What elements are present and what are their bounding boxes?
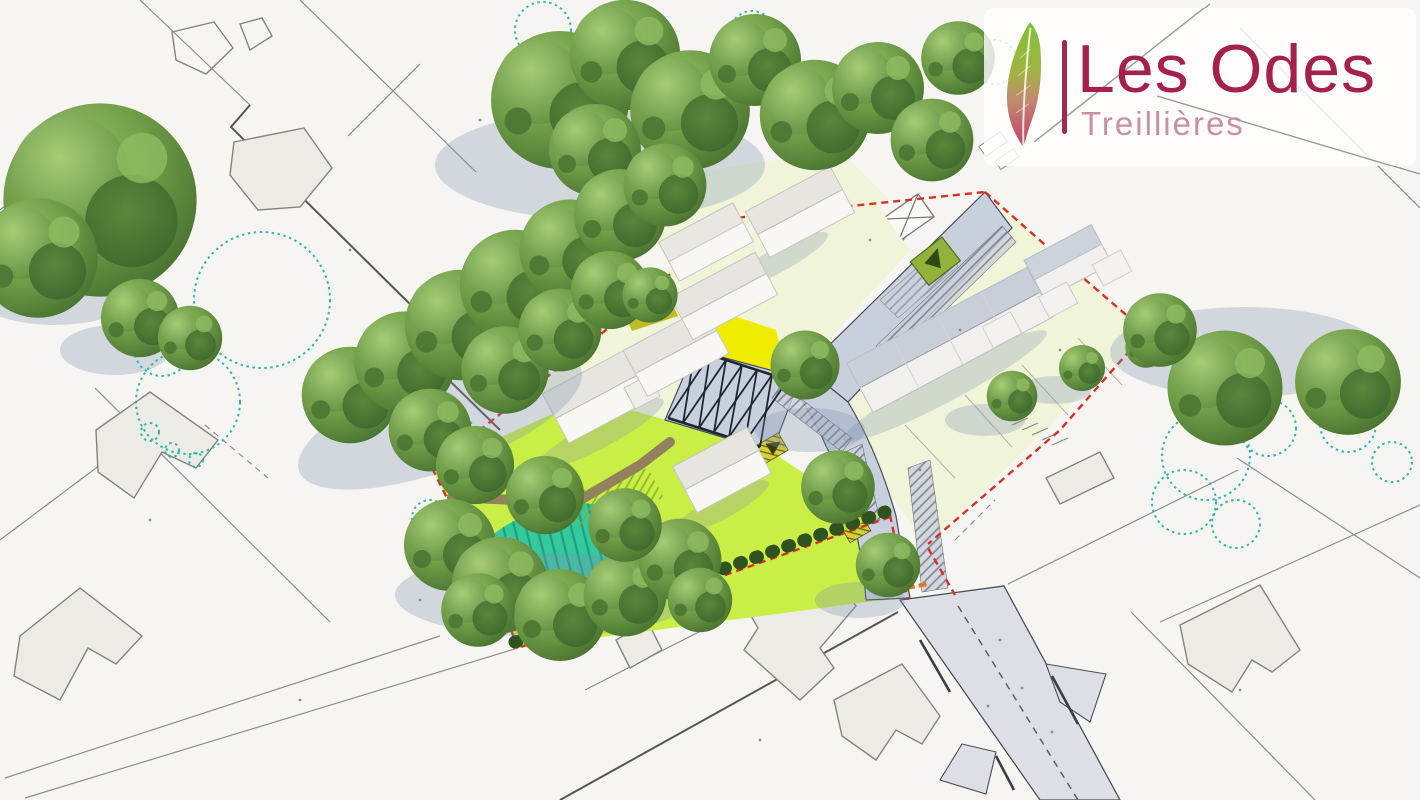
logo-title: Les Odes [1077,35,1376,103]
logo-subtitle: Treillières [1081,107,1376,140]
project-logo: Les Odes Treillières [984,8,1416,166]
logo-divider-bar [1062,40,1067,134]
masterplan-render: Les Odes Treillières [0,0,1420,800]
feather-icon [994,18,1052,156]
